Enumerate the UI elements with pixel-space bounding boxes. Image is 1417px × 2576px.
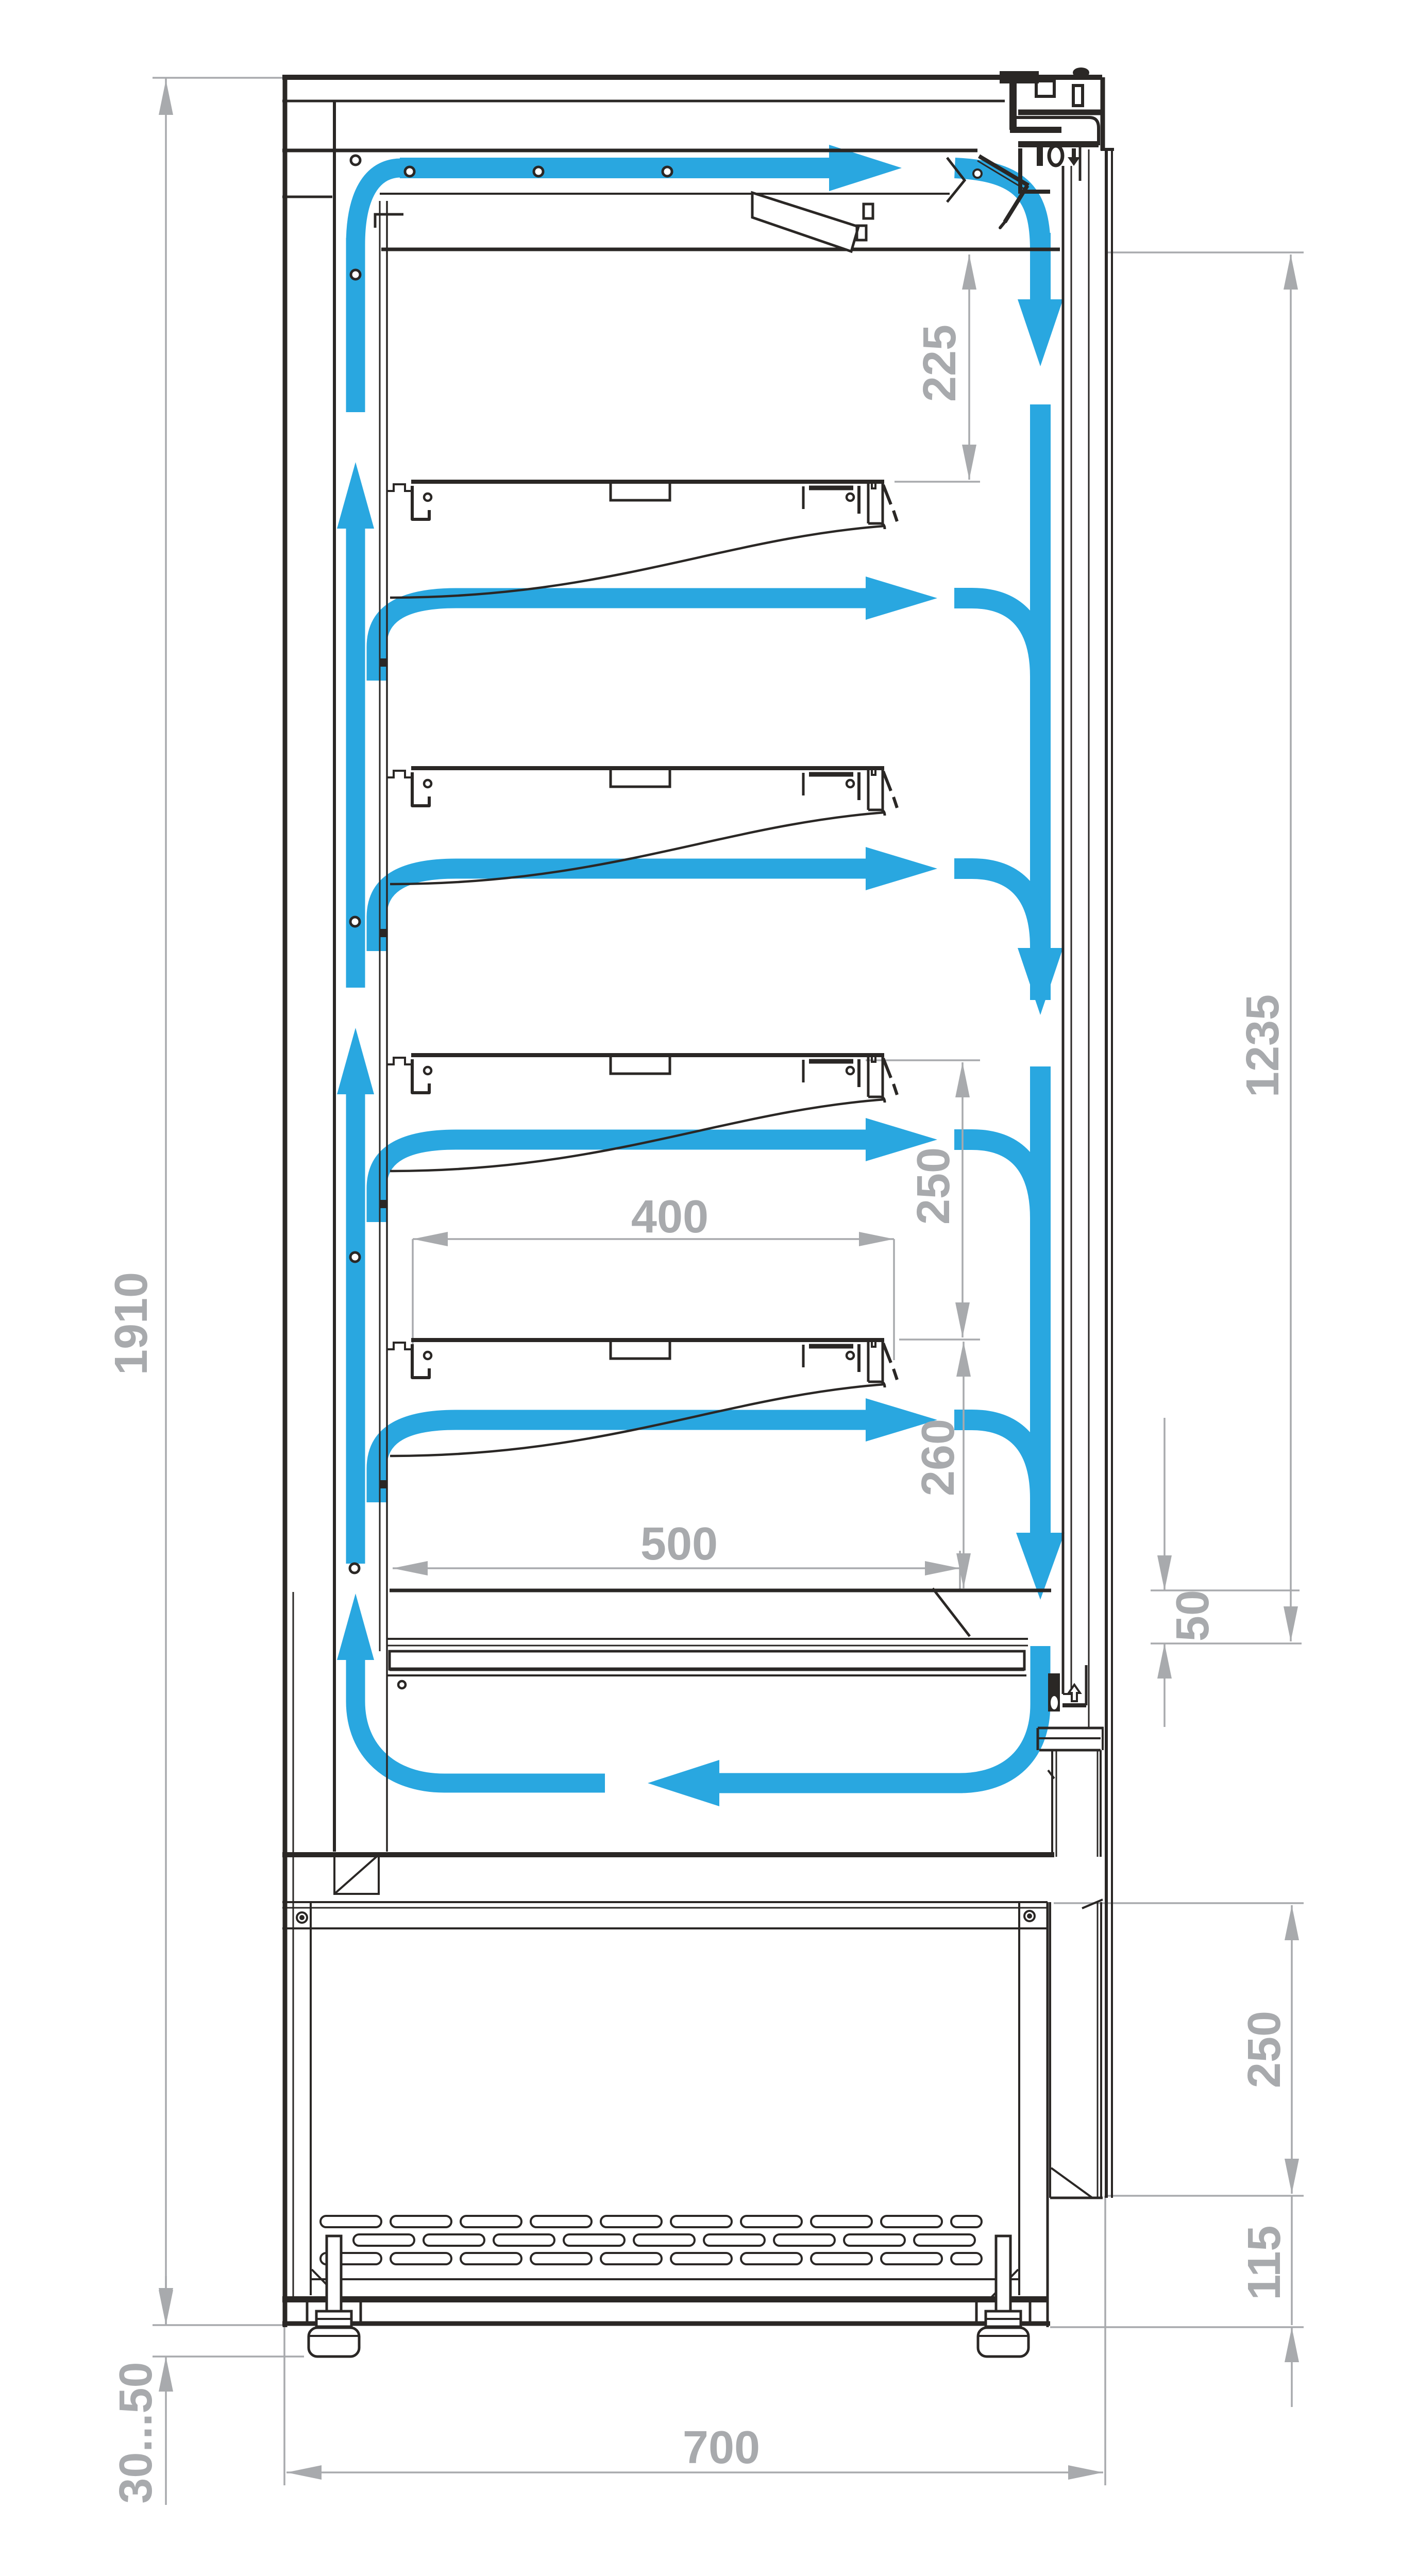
svg-text:500: 500 (640, 1518, 718, 1570)
svg-text:400: 400 (631, 1191, 709, 1243)
svg-text:1235: 1235 (1237, 994, 1289, 1097)
svg-text:115: 115 (1239, 2225, 1290, 2300)
svg-text:50: 50 (1167, 1590, 1219, 1641)
svg-text:225: 225 (914, 325, 966, 402)
svg-text:1910: 1910 (106, 1272, 157, 1375)
svg-text:250: 250 (1239, 2011, 1290, 2088)
svg-text:700: 700 (683, 2422, 760, 2473)
svg-text:30...50: 30...50 (110, 2362, 162, 2503)
svg-text:250: 250 (908, 1147, 959, 1225)
svg-text:260: 260 (913, 1419, 964, 1496)
